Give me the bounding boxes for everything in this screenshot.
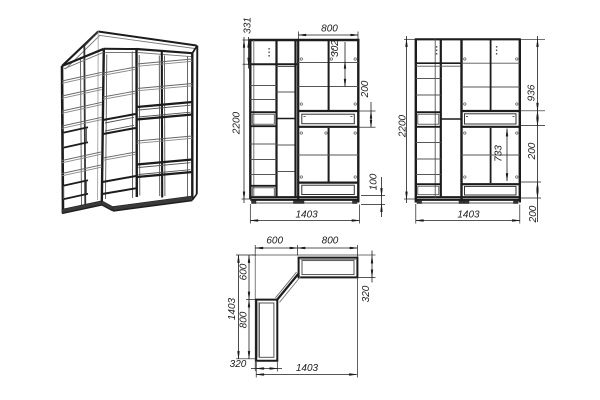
svg-text:600: 600 (266, 236, 283, 247)
svg-text:800: 800 (322, 236, 339, 247)
svg-text:200: 200 (528, 205, 539, 223)
svg-text:1403: 1403 (457, 210, 480, 221)
svg-text:1403: 1403 (295, 210, 318, 221)
svg-text:320: 320 (361, 285, 372, 302)
svg-text:100: 100 (369, 173, 380, 190)
svg-text:320: 320 (230, 359, 247, 370)
svg-text:302: 302 (330, 40, 341, 57)
svg-text:733: 733 (494, 145, 505, 162)
svg-text:600: 600 (239, 263, 250, 280)
svg-text:200: 200 (360, 80, 371, 98)
svg-text:1403: 1403 (296, 363, 319, 374)
svg-text:331: 331 (243, 17, 254, 34)
svg-text:800: 800 (239, 311, 250, 328)
svg-text:2200: 2200 (398, 114, 409, 138)
svg-text:2200: 2200 (232, 111, 243, 135)
svg-text:1403: 1403 (227, 297, 238, 320)
svg-text:800: 800 (321, 24, 338, 35)
svg-text:936: 936 (527, 84, 538, 101)
svg-text:200: 200 (527, 142, 538, 160)
